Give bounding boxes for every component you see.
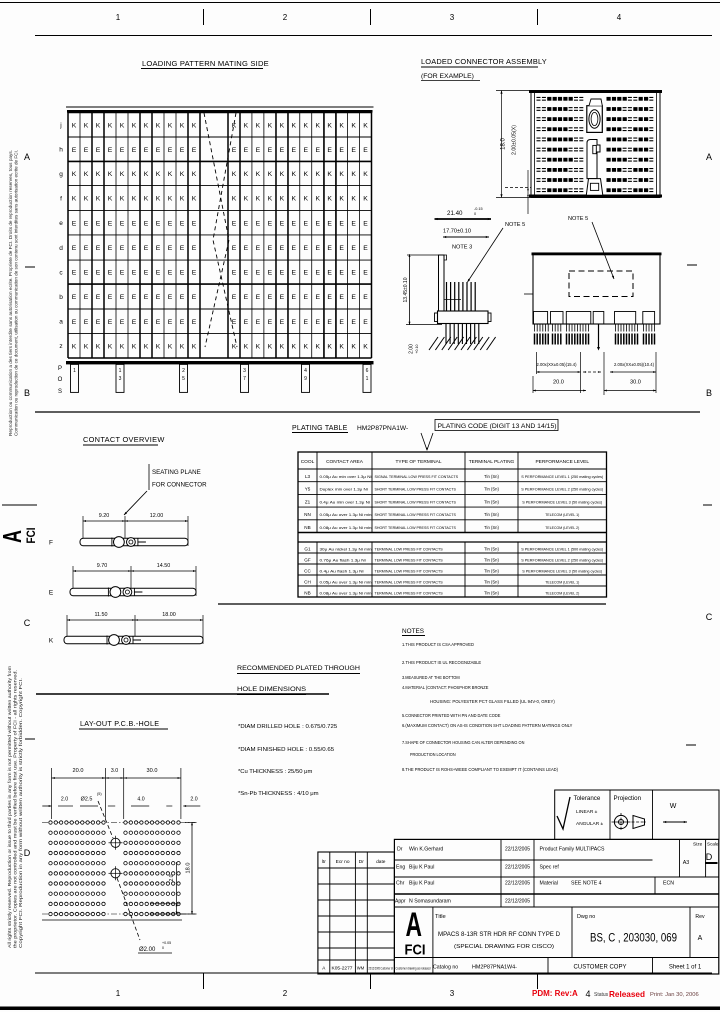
svg-text:E: E: [268, 245, 273, 252]
svg-text:SEE NOTE 4: SEE NOTE 4: [571, 881, 602, 887]
svg-text:K: K: [96, 122, 101, 129]
svg-text:Chr: Chr: [396, 881, 405, 887]
svg-text:12.00: 12.00: [150, 513, 164, 519]
svg-text:E: E: [192, 245, 197, 252]
svg-text:K: K: [192, 122, 197, 129]
svg-text:9: 9: [304, 376, 307, 382]
svg-text:K: K: [168, 343, 173, 350]
svg-text:0.4μ Au flash 1.3μ Ni: 0.4μ Au flash 1.3μ Ni: [320, 568, 364, 573]
svg-text:TERMINAL PLATING: TERMINAL PLATING: [469, 459, 515, 465]
svg-text:f: f: [60, 195, 62, 202]
svg-text:E: E: [156, 270, 161, 277]
svg-text:E: E: [108, 220, 113, 227]
svg-text:E: E: [156, 319, 161, 326]
svg-text:K: K: [49, 638, 54, 645]
svg-text:K: K: [72, 122, 77, 129]
svg-text:z: z: [59, 343, 62, 350]
svg-text:E: E: [327, 220, 332, 227]
svg-text:S PERFORMANCE LEVEL 3 (50 mati: S PERFORMANCE LEVEL 3 (50 mating cycles): [522, 499, 603, 504]
svg-text:E: E: [268, 220, 273, 227]
svg-text:BS, C , 203030, 069: BS, C , 203030, 069: [590, 931, 677, 945]
svg-text:ECN: ECN: [663, 881, 674, 887]
svg-text:K: K: [180, 122, 185, 129]
svg-text:E: E: [232, 270, 237, 277]
svg-text:E: E: [84, 270, 89, 277]
svg-text:E: E: [144, 270, 149, 277]
svg-text:E: E: [192, 270, 197, 277]
svg-text:E: E: [327, 270, 332, 277]
svg-text:K: K: [268, 196, 273, 203]
svg-text:TERMINAL LOW PRESS FIT CONTACT: TERMINAL LOW PRESS FIT CONTACTS: [375, 546, 443, 551]
svg-text:Scale: Scale: [707, 842, 719, 847]
svg-text:0.4μ Au min over 1.3μ Ni: 0.4μ Au min over 1.3μ Ni: [320, 499, 371, 504]
svg-text:E: E: [132, 319, 137, 326]
svg-text:j: j: [59, 122, 61, 129]
svg-text:K: K: [280, 343, 285, 350]
svg-text:E: E: [132, 270, 137, 277]
svg-text:K: K: [351, 122, 356, 129]
svg-text:E: E: [72, 220, 77, 227]
svg-text:K: K: [168, 196, 173, 203]
svg-text:E: E: [244, 147, 249, 154]
svg-text:E: E: [132, 294, 137, 301]
svg-text:-0.15: -0.15: [474, 207, 483, 211]
svg-text:*DIAM FINISHED HOLE : 0.55/0.6: *DIAM FINISHED HOLE : 0.55/0.65: [238, 747, 334, 753]
svg-text:TELECOM (LEVEL 2): TELECOM (LEVEL 2): [545, 590, 580, 595]
svg-text:K: K: [244, 196, 249, 203]
svg-text:LINEAR ±: LINEAR ±: [576, 809, 598, 815]
svg-text:K: K: [256, 171, 261, 178]
svg-text:E: E: [168, 319, 173, 326]
svg-text:1: 1: [116, 989, 121, 998]
svg-text:K: K: [168, 171, 173, 178]
svg-text:Eng: Eng: [396, 865, 405, 871]
svg-text:E: E: [180, 294, 185, 301]
svg-text:4: 4: [304, 368, 307, 374]
svg-text:NB: NB: [304, 590, 310, 595]
svg-text:K: K: [144, 196, 149, 203]
svg-text:9.70: 9.70: [97, 563, 108, 569]
svg-text:A: A: [698, 935, 703, 942]
svg-text:K: K: [315, 122, 320, 129]
svg-text:E: E: [168, 294, 173, 301]
svg-text:*Cu THICKNESS : 25/50 μm: *Cu THICKNESS : 25/50 μm: [238, 769, 313, 775]
svg-text:E: E: [120, 220, 125, 227]
svg-text:A: A: [406, 906, 423, 944]
svg-text:K: K: [303, 171, 308, 178]
svg-text:E: E: [96, 319, 101, 326]
svg-text:2: 2: [283, 13, 288, 22]
svg-text:2.THIS PRODUCT IS UL RECOGNIZA: 2.THIS PRODUCT IS UL RECOGNIZABLE: [402, 660, 481, 665]
svg-text:K: K: [315, 196, 320, 203]
svg-text:*DIAM DRILLED HOLE : 0.675/0.7: *DIAM DRILLED HOLE : 0.675/0.725: [238, 724, 337, 730]
svg-text:E: E: [339, 270, 344, 277]
svg-text:K: K: [84, 171, 89, 178]
svg-text:K: K: [339, 196, 344, 203]
svg-text:E: E: [96, 245, 101, 252]
svg-text:K: K: [96, 171, 101, 178]
svg-text:K: K: [72, 196, 77, 203]
svg-text:Dr: Dr: [359, 859, 364, 865]
svg-text:1: 1: [366, 376, 369, 382]
svg-text:CUSTOMER COPY: CUSTOMER COPY: [574, 965, 627, 971]
svg-text:Y5: Y5: [305, 487, 311, 492]
svg-text:(SPECIAL DRAWING FOR CISCO): (SPECIAL DRAWING FOR CISCO): [454, 944, 554, 950]
svg-text:Status: Status: [594, 992, 609, 998]
svg-text:K: K: [144, 122, 149, 129]
svg-text:30μ Au nickel 1.3μ Ni min: 30μ Au nickel 1.3μ Ni min: [320, 546, 372, 551]
svg-text:K: K: [132, 343, 137, 350]
svg-text:Ø2.00: Ø2.00: [139, 947, 156, 953]
svg-text:E: E: [192, 319, 197, 326]
svg-text:K: K: [232, 196, 237, 203]
svg-text:K: K: [363, 171, 368, 178]
svg-text:K: K: [363, 343, 368, 350]
svg-text:E: E: [268, 147, 273, 154]
svg-text:E: E: [244, 220, 249, 227]
svg-text:ANGULAR ±: ANGULAR ±: [576, 821, 604, 827]
svg-text:LAY-OUT P.C.B.-HOLE: LAY-OUT P.C.B.-HOLE: [80, 719, 159, 728]
svg-text:E: E: [144, 245, 149, 252]
svg-text:K: K: [108, 196, 113, 203]
svg-text:HM2P87PNA1W-: HM2P87PNA1W-: [357, 425, 408, 432]
svg-text:+0.10: +0.10: [415, 344, 419, 353]
svg-text:K: K: [180, 171, 185, 178]
svg-text:E: E: [180, 270, 185, 277]
svg-text:K: K: [108, 171, 113, 178]
svg-text:1: 1: [116, 13, 121, 22]
svg-text:Biju K Paul: Biju K Paul: [409, 881, 434, 887]
svg-text:K: K: [120, 196, 125, 203]
svg-text:E: E: [268, 294, 273, 301]
svg-text:E: E: [72, 294, 77, 301]
svg-text:E: E: [168, 147, 173, 154]
svg-text:TERMINAL LOW PRESS FIT CONTACT: TERMINAL LOW PRESS FIT CONTACTS: [375, 579, 443, 584]
svg-text:E: E: [327, 294, 332, 301]
svg-text:FOR CONNECTOR: FOR CONNECTOR: [152, 482, 207, 489]
svg-text:K: K: [256, 343, 261, 350]
svg-text:8.THE PRODUCT IS ROHS+WEEE COM: 8.THE PRODUCT IS ROHS+WEEE COMPLIANT TO …: [402, 767, 558, 772]
svg-text:E: E: [72, 147, 77, 154]
svg-text:N Somasundaram: N Somasundaram: [409, 899, 451, 905]
svg-text:K: K: [327, 196, 332, 203]
svg-text:K: K: [168, 122, 173, 129]
svg-text:Copyright FCI. Reproduction in: Copyright FCI. Reproduction in any form …: [18, 678, 23, 948]
svg-text:E: E: [292, 245, 297, 252]
svg-text:WM: WM: [357, 966, 365, 971]
svg-text:Z1: Z1: [305, 499, 311, 504]
svg-text:E: E: [339, 245, 344, 252]
svg-text:K: K: [363, 122, 368, 129]
svg-text:E: E: [156, 245, 161, 252]
svg-text:Catalog no: Catalog no: [433, 965, 458, 971]
svg-text:D: D: [706, 852, 713, 862]
svg-text:E: E: [315, 270, 320, 277]
svg-text:E: E: [292, 270, 297, 277]
svg-text:Tin (Sn): Tin (Sn): [484, 512, 499, 517]
svg-text:E: E: [315, 245, 320, 252]
svg-text:18.0: 18.0: [501, 138, 507, 150]
svg-text:K: K: [120, 122, 125, 129]
svg-text:K: K: [268, 122, 273, 129]
svg-text:Biju K Paul: Biju K Paul: [409, 865, 434, 871]
svg-text:TELECOM (LEVEL 1): TELECOM (LEVEL 1): [545, 512, 580, 517]
svg-text:SHORT TERMINAL LOW PRESS FIT C: SHORT TERMINAL LOW PRESS FIT CONTACTS: [375, 499, 457, 504]
svg-text:7: 7: [243, 376, 246, 382]
svg-text:E: E: [84, 147, 89, 154]
svg-text:Projection: Projection: [614, 795, 642, 802]
svg-text:E: E: [315, 319, 320, 326]
svg-text:Dr: Dr: [397, 847, 403, 853]
svg-text:K: K: [292, 171, 297, 178]
svg-text:G1: G1: [304, 546, 311, 551]
svg-text:HM2P87PNA1W4-: HM2P87PNA1W4-: [472, 965, 517, 971]
svg-text:TERMINAL LOW PRESS FIT CONTACT: TERMINAL LOW PRESS FIT CONTACTS: [375, 590, 443, 595]
svg-text:E: E: [339, 220, 344, 227]
svg-text:P: P: [58, 366, 62, 372]
svg-text:Tin (Sn): Tin (Sn): [484, 525, 499, 530]
svg-text:2.0: 2.0: [190, 797, 197, 803]
svg-text:K: K: [292, 122, 297, 129]
svg-text:CONTACT OVERVIEW: CONTACT OVERVIEW: [83, 435, 165, 444]
svg-text:Tin (Sn): Tin (Sn): [484, 568, 499, 573]
svg-text:E: E: [292, 220, 297, 227]
svg-text:11.50: 11.50: [94, 612, 107, 618]
svg-text:PDM: Rev:A: PDM: Rev:A: [532, 989, 578, 998]
svg-text:Dwg no: Dwg no: [577, 914, 595, 920]
svg-text:K: K: [351, 171, 356, 178]
svg-text:K: K: [292, 196, 297, 203]
svg-text:E: E: [180, 220, 185, 227]
svg-text:W: W: [670, 803, 677, 810]
svg-text:K: K: [72, 171, 77, 178]
svg-text:22/12/2005: 22/12/2005: [505, 847, 530, 853]
svg-text:g: g: [59, 171, 63, 178]
svg-text:MPACS 8-13R STR HDR RF CONN TY: MPACS 8-13R STR HDR RF CONN TYPE D: [438, 931, 560, 938]
svg-text:A3: A3: [683, 860, 690, 866]
svg-text:K: K: [156, 343, 161, 350]
svg-text:E: E: [96, 294, 101, 301]
svg-text:17.70±0.10: 17.70±0.10: [443, 229, 471, 235]
svg-text:PRODUCTION LOCATION: PRODUCTION LOCATION: [410, 752, 456, 757]
svg-text:K: K: [315, 171, 320, 178]
svg-text:E: E: [315, 294, 320, 301]
svg-text:E: E: [72, 245, 77, 252]
svg-text:1: 1: [119, 368, 122, 374]
svg-text:E: E: [303, 319, 308, 326]
svg-text:E: E: [168, 220, 173, 227]
svg-text:E: E: [256, 294, 261, 301]
svg-text:TELECOM (LEVEL 2): TELECOM (LEVEL 2): [545, 525, 580, 530]
svg-text:E: E: [280, 319, 285, 326]
svg-text:E: E: [280, 147, 285, 154]
svg-text:25/12/2005 Customer dr: 25/12/2005 Customer dr: [369, 967, 394, 971]
svg-text:E: E: [256, 270, 261, 277]
svg-text:3: 3: [243, 368, 246, 374]
svg-text:K: K: [327, 122, 332, 129]
svg-text:3.0: 3.0: [111, 768, 118, 774]
svg-text:K: K: [180, 196, 185, 203]
svg-text:E: E: [244, 245, 249, 252]
svg-text:E: E: [315, 147, 320, 154]
svg-text:E: E: [120, 294, 125, 301]
svg-text:A: A: [706, 152, 712, 162]
svg-text:e: e: [59, 220, 63, 227]
svg-text:K: K: [280, 122, 285, 129]
svg-text:14.50: 14.50: [157, 563, 171, 569]
svg-text:S PERFORMANCE LEVEL 1 (250 mat: S PERFORMANCE LEVEL 1 (250 mating cycles…: [521, 474, 604, 479]
svg-text:a: a: [59, 319, 63, 326]
svg-text:Duplex min over 1.3μ Ni: Duplex min over 1.3μ Ni: [320, 487, 368, 492]
svg-text:18.00: 18.00: [162, 612, 176, 618]
svg-text:E: E: [180, 245, 185, 252]
svg-text:3.MEASURED AT THE BOTTOM: 3.MEASURED AT THE BOTTOM: [402, 675, 460, 680]
svg-text:NB: NB: [304, 525, 310, 530]
svg-text:E: E: [144, 220, 149, 227]
svg-text:d: d: [59, 245, 63, 252]
svg-text:1.THIS PRODUCT IS CSA APPROVED: 1.THIS PRODUCT IS CSA APPROVED: [402, 642, 475, 647]
svg-text:GF: GF: [304, 557, 311, 562]
svg-text:E: E: [351, 270, 356, 277]
svg-text:E: E: [303, 245, 308, 252]
svg-text:Tin (Sn): Tin (Sn): [484, 474, 499, 479]
svg-text:E: E: [156, 147, 161, 154]
svg-text:0.05μ Au over 1.3μ Ni min: 0.05μ Au over 1.3μ Ni min: [320, 512, 372, 517]
svg-text:E: E: [244, 294, 249, 301]
svg-text:B: B: [706, 388, 712, 398]
svg-text:Rev: Rev: [695, 914, 705, 920]
svg-text:K: K: [156, 196, 161, 203]
svg-text:HOLE DIMENSIONS: HOLE DIMENSIONS: [237, 686, 307, 693]
svg-text:E: E: [120, 147, 125, 154]
svg-text:E: E: [84, 319, 89, 326]
svg-text:22/12/2005: 22/12/2005: [505, 865, 530, 871]
svg-text:Tin (Sn): Tin (Sn): [484, 557, 499, 562]
svg-text:(FOR EXAMPLE): (FOR EXAMPLE): [421, 73, 474, 80]
svg-text:K: K: [108, 343, 113, 350]
svg-text:K: K: [339, 343, 344, 350]
svg-text:E: E: [256, 147, 261, 154]
svg-text:E: E: [232, 245, 237, 252]
svg-text:E: E: [108, 270, 113, 277]
svg-text:K: K: [315, 343, 320, 350]
svg-text:E: E: [280, 294, 285, 301]
svg-text:E: E: [303, 294, 308, 301]
svg-text:K: K: [156, 122, 161, 129]
svg-text:Ecr no: Ecr no: [336, 859, 350, 865]
svg-text:NOTE 5: NOTE 5: [505, 222, 525, 228]
svg-text:Customer drawing as released: Customer drawing as released: [396, 967, 431, 971]
svg-text:5: 5: [182, 376, 185, 382]
svg-text:E: E: [49, 590, 54, 597]
svg-text:FCI: FCI: [405, 942, 426, 959]
svg-text:K: K: [180, 343, 185, 350]
svg-text:O: O: [58, 377, 63, 383]
svg-text:E: E: [327, 147, 332, 154]
svg-text:E: E: [232, 147, 237, 154]
svg-text:K: K: [192, 171, 197, 178]
svg-text:E: E: [292, 319, 297, 326]
svg-text:date: date: [376, 859, 386, 865]
svg-text:E: E: [256, 245, 261, 252]
svg-text:E: E: [280, 270, 285, 277]
svg-text:9.20: 9.20: [99, 513, 110, 519]
svg-text:K: K: [132, 196, 137, 203]
svg-text:0.05μ Au min over 1.3μ Ni: 0.05μ Au min over 1.3μ Ni: [320, 474, 372, 479]
svg-text:E: E: [108, 294, 113, 301]
svg-text:E: E: [132, 220, 137, 227]
svg-text:K: K: [72, 343, 77, 350]
svg-text:Product Family MULTIPACS: Product Family MULTIPACS: [540, 847, 605, 853]
svg-text:E: E: [180, 319, 185, 326]
svg-text:K: K: [327, 171, 332, 178]
svg-text:E: E: [120, 270, 125, 277]
svg-text:S PERFORMANCE LEVEL 2 (250 mat: S PERFORMANCE LEVEL 2 (250 mating cycles…: [521, 557, 604, 562]
svg-text:E: E: [363, 220, 368, 227]
svg-text:Tin (Sn): Tin (Sn): [484, 579, 499, 584]
svg-text:Communication ou reproduction: Communication ou reproduction de ce docu…: [14, 150, 19, 436]
svg-text:SHORT TERMINAL LOW PRESS FIT C: SHORT TERMINAL LOW PRESS FIT CONTACTS: [375, 487, 457, 492]
svg-text:K05-2277: K05-2277: [332, 966, 354, 971]
svg-text:2.00x(XX±0.05)(15.4): 2.00x(XX±0.05)(15.4): [537, 362, 578, 367]
svg-text:K: K: [244, 122, 249, 129]
svg-text:SHORT TERMINAL LOW PRESS FIT C: SHORT TERMINAL LOW PRESS FIT CONTACTS: [375, 525, 457, 530]
svg-text:2.0: 2.0: [169, 874, 175, 881]
svg-text:E: E: [192, 294, 197, 301]
svg-text:0.76μ Au flash 1.3μ Ni: 0.76μ Au flash 1.3μ Ni: [320, 557, 366, 562]
svg-text:C: C: [706, 612, 713, 622]
svg-text:E: E: [84, 220, 89, 227]
svg-text:18.0: 18.0: [186, 863, 192, 874]
svg-text:E: E: [192, 147, 197, 154]
svg-text:Material: Material: [540, 881, 558, 887]
svg-text:TERMINAL LOW PRESS FIT CONTACT: TERMINAL LOW PRESS FIT CONTACTS: [375, 568, 443, 573]
svg-text:0: 0: [162, 946, 164, 950]
svg-text:E: E: [351, 147, 356, 154]
svg-text:Tin (Sn): Tin (Sn): [484, 546, 499, 551]
svg-text:NOTE 3: NOTE 3: [452, 245, 472, 251]
svg-text:K: K: [268, 171, 273, 178]
svg-text:NOTES: NOTES: [402, 628, 424, 635]
svg-text:CONTACT AREA: CONTACT AREA: [326, 459, 364, 465]
svg-text:E: E: [339, 147, 344, 154]
svg-text:2.00±0.05(X): 2.00±0.05(X): [512, 125, 518, 155]
svg-text:K: K: [120, 171, 125, 178]
svg-text:HOUSING: POLYESTER PCT GLASS F: HOUSING: POLYESTER PCT GLASS FILLED (UL …: [430, 699, 555, 704]
svg-text:E: E: [84, 294, 89, 301]
svg-text:K: K: [96, 343, 101, 350]
svg-text:K: K: [268, 343, 273, 350]
svg-text:K: K: [192, 196, 197, 203]
svg-text:3: 3: [450, 989, 455, 998]
svg-text:E: E: [156, 294, 161, 301]
svg-text:K: K: [120, 343, 125, 350]
svg-text:SIGNAL TERMINAL LOW PRESS FIT: SIGNAL TERMINAL LOW PRESS FIT CONTACTS: [375, 474, 459, 479]
svg-text:E: E: [339, 319, 344, 326]
svg-text:the proprietor. Copies are not: the proprietor. Copies are not controlle…: [13, 670, 18, 948]
svg-text:K: K: [84, 122, 89, 129]
svg-text:21.40: 21.40: [447, 210, 463, 217]
svg-text:SEATING PLANE: SEATING PLANE: [152, 469, 201, 476]
svg-text:K: K: [351, 196, 356, 203]
svg-text:E: E: [144, 294, 149, 301]
svg-text:E: E: [363, 245, 368, 252]
svg-text:Reproduction ou communication: Reproduction ou communication a des tier…: [8, 150, 13, 436]
svg-text:E: E: [351, 220, 356, 227]
svg-text:K: K: [303, 196, 308, 203]
svg-text:E: E: [303, 147, 308, 154]
svg-text:K: K: [192, 343, 197, 350]
